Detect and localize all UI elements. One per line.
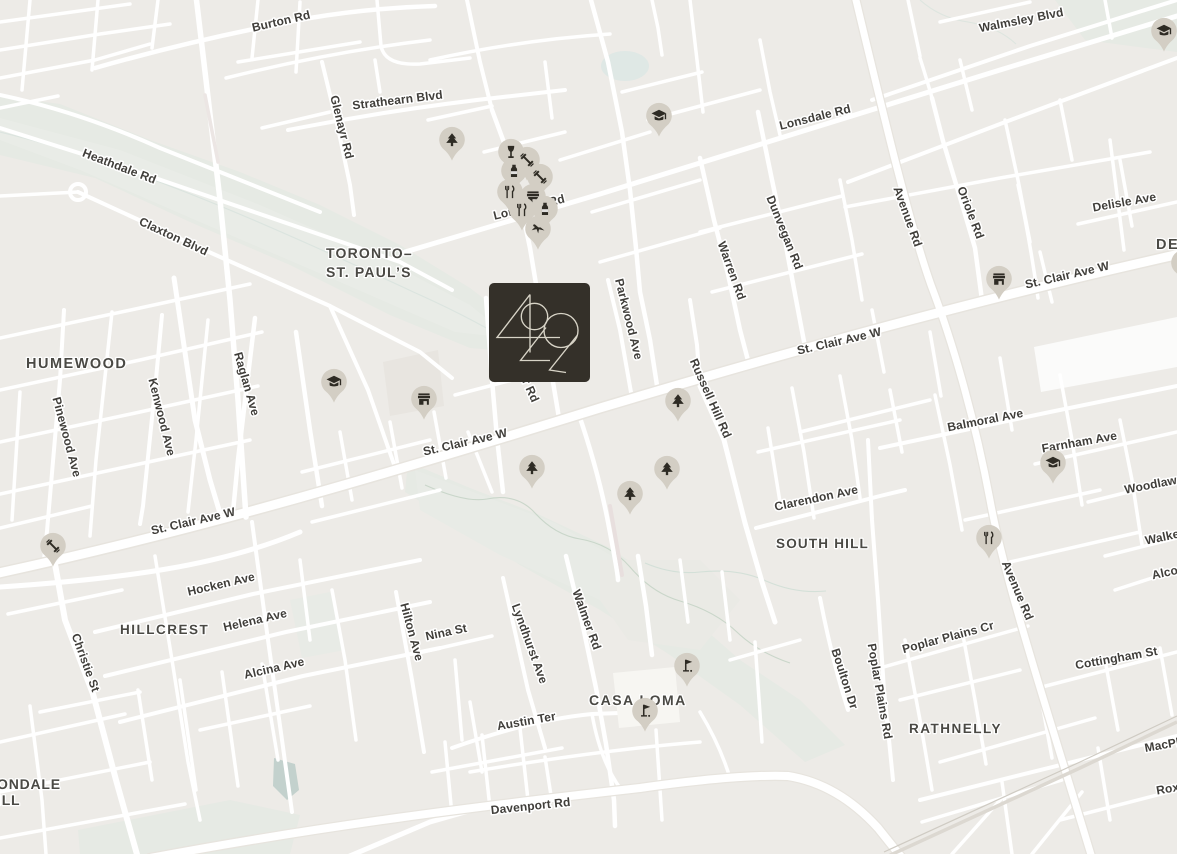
svg-text:ILL: ILL: [0, 792, 20, 808]
svg-text:DE: DE: [1156, 237, 1177, 253]
svg-text:TORONTO–: TORONTO–: [326, 245, 413, 261]
svg-text:ONDALE: ONDALE: [0, 776, 61, 792]
svg-text:HILLCREST: HILLCREST: [120, 622, 209, 637]
svg-text:HUMEWOOD: HUMEWOOD: [26, 356, 127, 372]
svg-text:ST. PAUL’S: ST. PAUL’S: [326, 264, 412, 280]
svg-text:RATHNELLY: RATHNELLY: [909, 721, 1002, 736]
svg-text:SOUTH HILL: SOUTH HILL: [776, 536, 869, 551]
